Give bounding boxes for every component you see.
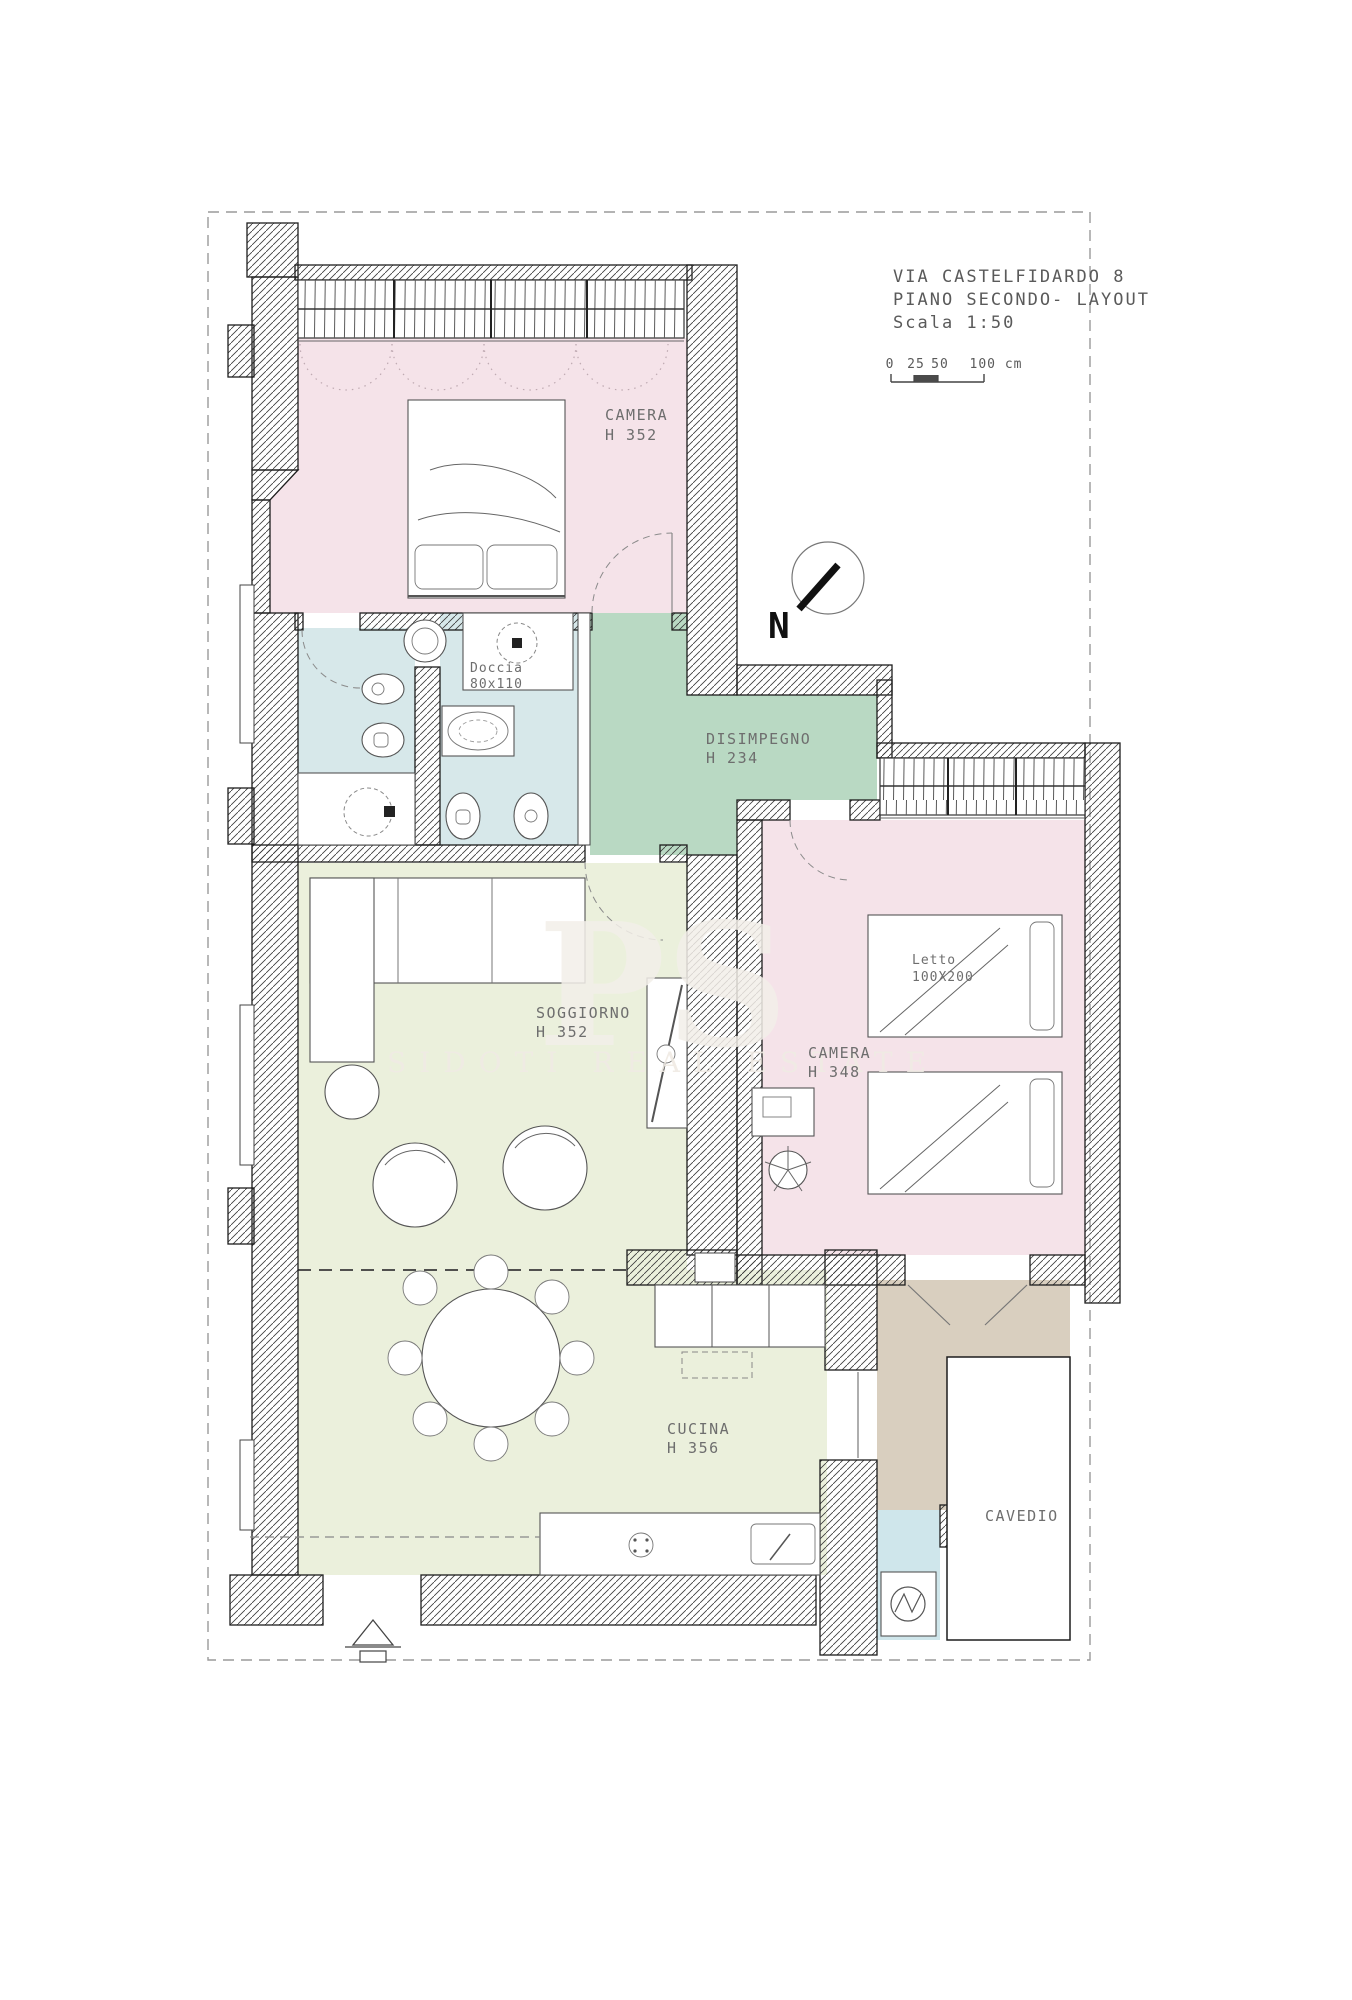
floorplan-page: PS SIDOTI REAL ESTATE CAMERA H 352 Docci… — [0, 0, 1352, 2000]
wall-bottom-left — [230, 1575, 323, 1625]
pilaster-3 — [228, 1188, 254, 1244]
title-line2: PIANO SECONDO- LAYOUT — [893, 290, 1150, 310]
scale-tick-100: 100 cm — [970, 357, 1023, 372]
scale-tick-0: 0 — [886, 357, 895, 372]
pilaster-2 — [228, 788, 254, 844]
armchair-2 — [503, 1126, 587, 1210]
sofa-chaise — [310, 878, 374, 1062]
label-disimpegno: DISIMPEGNO — [706, 730, 811, 748]
scale-tick-25: 25 — [907, 357, 925, 372]
label-letto-size: 100X200 — [912, 970, 974, 985]
wall-bottom-main — [421, 1575, 816, 1625]
compass: N — [768, 542, 864, 647]
wall-balcone-column-top — [825, 1250, 877, 1370]
label-soggiorno: SOGGIORNO — [536, 1004, 631, 1022]
wall-disimpegno-top — [737, 665, 892, 695]
scale-filled-segment — [914, 375, 938, 382]
wall-camera1-right — [687, 265, 737, 695]
label-cucina: CUCINA — [667, 1420, 730, 1438]
pillow-bed-2 — [1030, 1079, 1054, 1187]
pilaster-1 — [228, 325, 254, 377]
label-camera2-height: H 348 — [808, 1063, 861, 1081]
wall-camera2-window-top — [877, 743, 1085, 758]
label-camera1: CAMERA — [605, 406, 668, 424]
pillow-1 — [415, 545, 483, 589]
wall-bath-bottom-a — [252, 845, 585, 862]
wall-bath-top-a — [295, 613, 303, 630]
wall-bath-divider — [415, 667, 440, 845]
entrance-arrow — [345, 1620, 401, 1662]
washbasin-oval — [448, 712, 508, 750]
laptop — [763, 1097, 791, 1117]
wall-glass-partition — [578, 613, 590, 845]
wall-camera1-top — [295, 265, 692, 280]
shower-mixer-1 — [384, 806, 395, 817]
wall-right — [1085, 743, 1120, 1303]
wall-bath-top-c — [672, 613, 687, 630]
bed-double — [408, 400, 565, 598]
window-camera1 — [298, 280, 684, 341]
scale-bar: 0 25 50 100 cm — [886, 357, 1023, 382]
label-cucina-height: H 356 — [667, 1439, 720, 1457]
cavedio-shaft — [947, 1357, 1070, 1640]
title-line1: VIA CASTELFIDARDO 8 — [893, 267, 1125, 287]
pillow-bed-1 — [1030, 922, 1054, 1030]
label-camera2: CAMERA — [808, 1044, 871, 1062]
label-soggiorno-height: H 352 — [536, 1023, 589, 1041]
pillow-2 — [487, 545, 557, 589]
title-block: VIA CASTELFIDARDO 8 PIANO SECONDO- LAYOU… — [893, 267, 1150, 333]
compass-needle — [799, 565, 838, 609]
label-doccia-size: 80x110 — [470, 677, 523, 692]
scale-tick-50: 50 — [931, 357, 949, 372]
label-camera1-height: H 352 — [605, 426, 658, 444]
wall-camera2-top-a — [737, 800, 790, 820]
window-camera2 — [880, 758, 1085, 818]
wall-balcone-column-bottom — [820, 1460, 877, 1655]
wall-flue-column — [695, 1253, 735, 1282]
shower-area — [298, 773, 415, 845]
window-left-1 — [240, 585, 254, 743]
wall-camera2-top-b — [850, 800, 880, 820]
label-letto: Letto — [912, 953, 956, 968]
shower-mixer-2 — [512, 638, 522, 648]
wall-left-mid — [252, 500, 270, 613]
wall-camera2-bottom-b — [1030, 1255, 1085, 1285]
wall-bath-bottom-b — [660, 845, 687, 862]
label-doccia: Doccia — [470, 661, 523, 676]
window-left-2 — [240, 1005, 254, 1165]
wall-left-upper — [252, 277, 298, 470]
wall-topleft-block — [247, 223, 298, 277]
stove — [629, 1533, 653, 1557]
compass-north-label: N — [768, 606, 790, 647]
window-left-3 — [240, 1440, 254, 1530]
side-table — [325, 1065, 379, 1119]
label-disimpegno-height: H 234 — [706, 749, 759, 767]
dining-table — [422, 1289, 560, 1427]
wall-left-lower — [252, 613, 298, 1575]
floorplan-drawing: PS SIDOTI REAL ESTATE CAMERA H 352 Docci… — [0, 0, 1352, 2000]
wall-camera2-bottom-a — [737, 1255, 905, 1285]
armchair-1 — [373, 1143, 457, 1227]
label-cavedio: CAVEDIO — [985, 1507, 1059, 1525]
title-line3: Scala 1:50 — [893, 313, 1015, 333]
